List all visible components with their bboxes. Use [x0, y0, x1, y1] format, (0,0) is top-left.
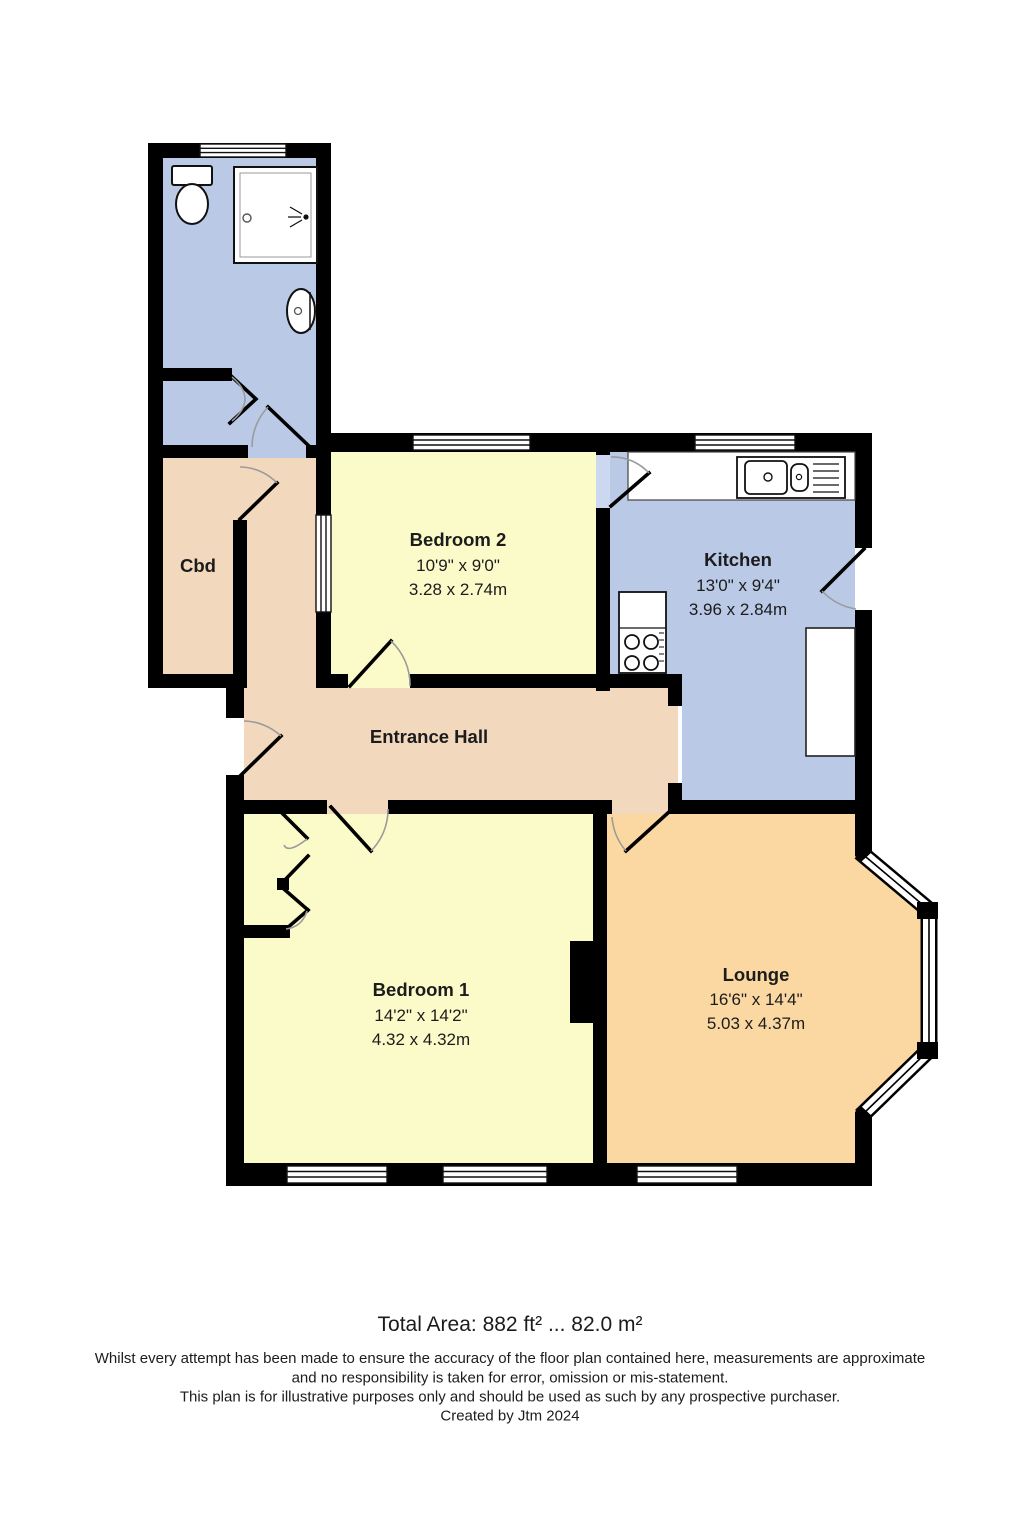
bedroom2-side-window [316, 515, 331, 612]
disclaimer-line-1: Whilst every attempt has been made to en… [95, 1350, 925, 1367]
bay-joint [917, 902, 938, 919]
kitchen-size-metric: 3.96 x 2.84m [689, 600, 787, 619]
wardrobe-stub-wall [226, 925, 290, 938]
bedroom2-size-imperial: 10'9" x 9'0" [416, 556, 500, 575]
lounge-size-metric: 5.03 x 4.37m [707, 1014, 805, 1033]
bedroom2-window [413, 435, 530, 450]
floorplan-page: Cbd Bedroom 2 10'9" x 9'0" 3.28 x 2.74m … [0, 0, 1020, 1521]
kitchen-door-gap [596, 455, 610, 508]
shower-icon [234, 167, 317, 263]
floorplan-svg: Cbd Bedroom 2 10'9" x 9'0" 3.28 x 2.74m … [0, 0, 1020, 1521]
wall-segment [596, 433, 610, 455]
wall-segment [148, 674, 247, 688]
disclaimer-line-2: and no responsibility is taken for error… [292, 1370, 729, 1387]
wall-segment [148, 445, 248, 458]
wall-segment [593, 800, 607, 1163]
hob-icon [619, 592, 666, 673]
wall-segment [668, 783, 682, 800]
lounge-label: Lounge [723, 964, 790, 985]
wall-segment [226, 688, 244, 718]
total-area-text: Total Area: 882 ft² ... 82.0 m² [378, 1313, 643, 1336]
toilet-icon [172, 166, 212, 224]
wall-segment [596, 508, 610, 691]
wall-segment [233, 520, 247, 688]
wall-segment [148, 143, 163, 688]
credit-text: Created by Jtm 2024 [440, 1408, 579, 1425]
lounge-door-gap [612, 800, 668, 814]
kitchen-size-imperial: 13'0" x 9'4" [696, 576, 780, 595]
bedroom1-label: Bedroom 1 [373, 979, 470, 1000]
wall-segment [668, 800, 872, 814]
entrance-hall-label: Entrance Hall [370, 726, 488, 747]
bedroom2-label: Bedroom 2 [410, 529, 507, 550]
bedroom1-size-imperial: 14'2" x 14'2" [374, 1006, 467, 1025]
bay-joint [917, 1042, 938, 1059]
kitchen-sink-icon [737, 457, 845, 498]
wall-segment [668, 688, 682, 706]
bedroom2-size-metric: 3.28 x 2.74m [409, 580, 507, 599]
kitchen-window [695, 435, 795, 450]
bedroom1-window [287, 1166, 387, 1183]
disclaimer-line-3: This plan is for illustrative purposes o… [180, 1389, 840, 1406]
wall-segment [226, 775, 244, 800]
wall-segment [855, 433, 872, 548]
corridor-floor [247, 458, 316, 688]
kitchen-label: Kitchen [704, 549, 772, 570]
wall-segment [388, 800, 612, 814]
basin-icon [287, 289, 315, 333]
bathroom-window [200, 144, 286, 157]
wall-segment [316, 674, 348, 688]
lounge-window [637, 1166, 737, 1183]
wall-segment [410, 674, 682, 688]
wall-segment [316, 143, 331, 515]
footer: Total Area: 882 ft² ... 82.0 m² Whilst e… [95, 1313, 925, 1425]
lounge-size-imperial: 16'6" x 14'4" [709, 990, 802, 1009]
kitchen-unit [806, 628, 855, 756]
wall-segment [226, 800, 244, 1186]
chimney-breast [570, 941, 593, 1023]
bedroom1-size-metric: 4.32 x 4.32m [372, 1030, 470, 1049]
wall-segment [161, 368, 232, 381]
cbd-label: Cbd [180, 555, 216, 576]
bathroom-door-gap [248, 445, 306, 458]
bedroom1-window [443, 1166, 547, 1183]
